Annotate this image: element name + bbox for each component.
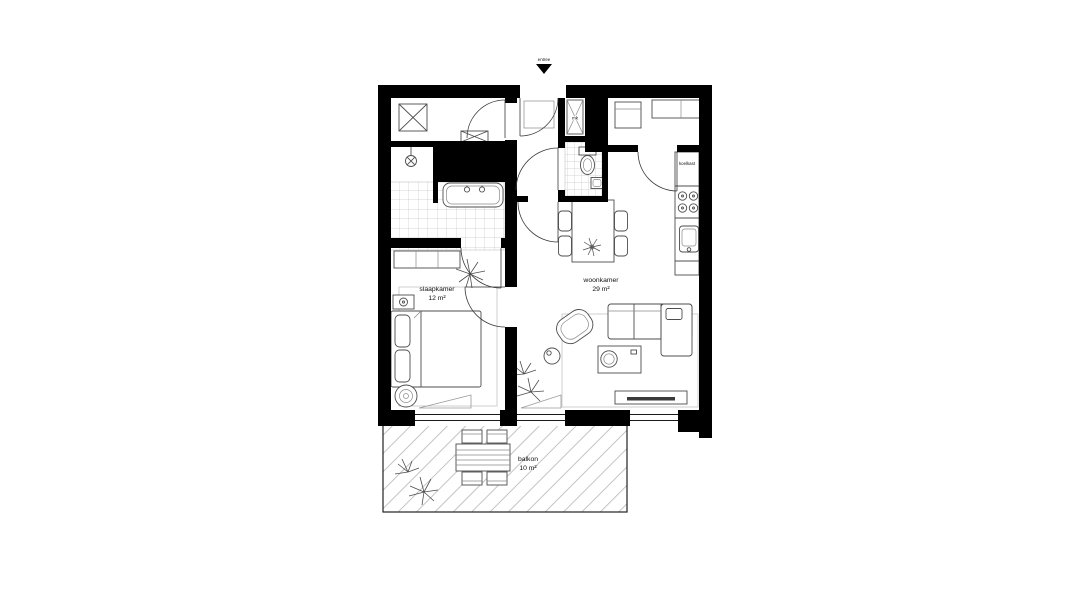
bedroom-area: 12 m² [428,295,446,302]
balcony-area: 10 m² [519,465,537,472]
living-room: woonkamer 29 m² [512,200,692,404]
storage-room [399,104,488,142]
upper-counter [615,100,708,128]
doormat-icon [461,131,488,142]
entrance-marker: entree [536,57,552,74]
doormat-icon [524,101,554,128]
balcony-door [517,395,565,426]
tv-icon [615,391,687,404]
entrance-arrow-icon [536,64,552,74]
sink-icon [591,178,603,189]
bathtub-icon [443,183,503,207]
living-room-window [630,410,678,426]
bedroom-label: slaapkamer [419,286,455,293]
nightstand [393,295,414,309]
bed-icon [391,311,481,387]
floor-plan-page: entree balkon 10 m² [0,0,1092,606]
coffee-table [598,346,641,373]
dresser [394,251,460,268]
meter-cupboard: mk [567,100,583,134]
armchair [552,305,597,348]
entrance-label: entree [538,57,551,62]
living-room-label: woonkamer [582,277,619,284]
ceiling-lamp-icon [406,146,417,167]
wc-door [516,148,558,190]
side-table [544,348,560,364]
counter-column [675,152,699,275]
hall-living-door [518,202,558,242]
dining-set [559,200,628,262]
washing-machine-icon [399,104,427,131]
front-door [520,98,558,136]
bedroom-window [415,395,500,426]
fridge-label: koelkast [679,161,696,166]
kitchen-storage-door [638,152,677,191]
bathroom-bedroom-door [461,248,501,288]
living-room-area: 29 m² [592,286,610,293]
stool [395,385,417,407]
balcony-label: balkon [518,456,538,463]
floor-plan: entree balkon 10 m² [0,0,1092,606]
balcony-room: balkon 10 m² [383,424,627,512]
meter-cupboard-label: mk [572,116,579,121]
